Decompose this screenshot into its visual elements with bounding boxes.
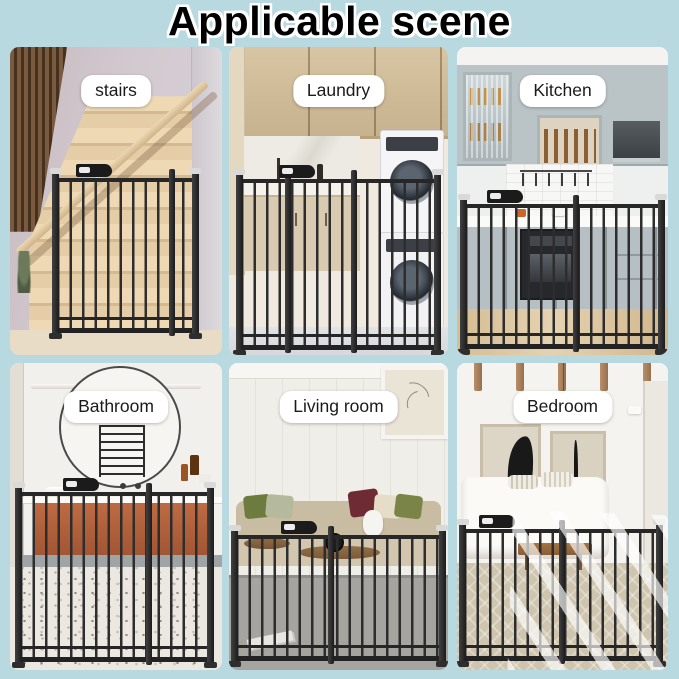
gate-right-post [658,197,665,352]
gate-bars [465,204,660,349]
utensil-rail [520,170,592,172]
range-hood [613,121,659,162]
gate-right-post [439,528,446,664]
scene-panel-laundry: Laundry [229,47,448,355]
soap-bottle [181,464,188,481]
gate-latch-handle [281,521,317,534]
potted-plant [16,251,32,293]
gate-left-post [231,528,238,664]
spice-shelf-niche [537,115,602,170]
panel-label-bathroom: Bathroom [64,391,168,423]
ceiling-beam [516,363,524,391]
gate-left-post [15,485,22,665]
panel-label-living-room: Living room [279,391,397,423]
wall-sconce [628,406,641,414]
gate-latch-handle [479,515,515,528]
gate-right-post [656,522,663,664]
scene-panel-bedroom: Bedroom [457,363,668,670]
panel-label-kitchen: Kitchen [519,75,605,107]
gate-door-post [559,520,565,664]
gate-door-post [146,483,152,665]
panel-label-laundry: Laundry [293,75,384,107]
gate-latch-handle [487,190,523,203]
gate-right-post [434,172,441,353]
striped-pillow [541,472,573,487]
gate-bars [241,179,437,350]
kitchen-ceiling [457,47,668,65]
faucet-knob [120,483,126,489]
gate-latch-handle [63,478,99,491]
scene-panel-living-room: Living room [229,363,448,670]
safety-gate [15,492,213,662]
gate-left-post [460,197,467,352]
faucet-knob [135,483,141,489]
glass-front-cabinet [463,72,511,161]
product-scene-collage: Applicable scene stairs [0,0,679,679]
scene-panel-bathroom: Bathroom [10,363,222,670]
scene-panel-stairs: stairs [10,47,222,355]
safety-gate [236,179,442,350]
safety-gate [460,204,665,349]
towel-rack-reflection [99,425,145,477]
gate-bars [236,535,441,661]
gate-left-post [236,172,243,353]
throw-pillow [265,494,294,519]
gate-door-post [169,169,175,337]
gate-door-post [285,170,291,353]
ceiling-beam [474,363,482,391]
hanging-utensils [522,173,590,186]
washer-control-panel [386,137,438,151]
page-title: Applicable scene [0,0,679,45]
scene-panel-kitchen: Kitchen [457,47,668,355]
gate-door-post [351,170,357,353]
plush-toy [363,510,383,536]
ceiling-beam [600,363,608,391]
spice-bottles [544,129,596,163]
safety-gate [231,535,446,661]
safety-gate [459,529,663,661]
panel-label-bedroom: Bedroom [513,391,612,423]
safety-gate [52,178,198,334]
gate-right-post [192,171,199,337]
round-mirror [59,366,181,488]
gate-latch-handle [279,165,315,178]
gate-door-post [573,195,579,352]
gate-right-post [207,485,214,665]
fluted-glass [466,75,508,158]
gate-door-post [328,526,334,664]
gate-left-post [459,522,466,664]
gate-left-post [52,171,59,337]
striped-pillow [508,475,538,489]
gate-bars [20,492,208,662]
soap-bottle [190,455,199,475]
throw-pillow [394,493,424,519]
panel-label-stairs: stairs [81,75,151,107]
gate-latch-handle [76,164,112,177]
